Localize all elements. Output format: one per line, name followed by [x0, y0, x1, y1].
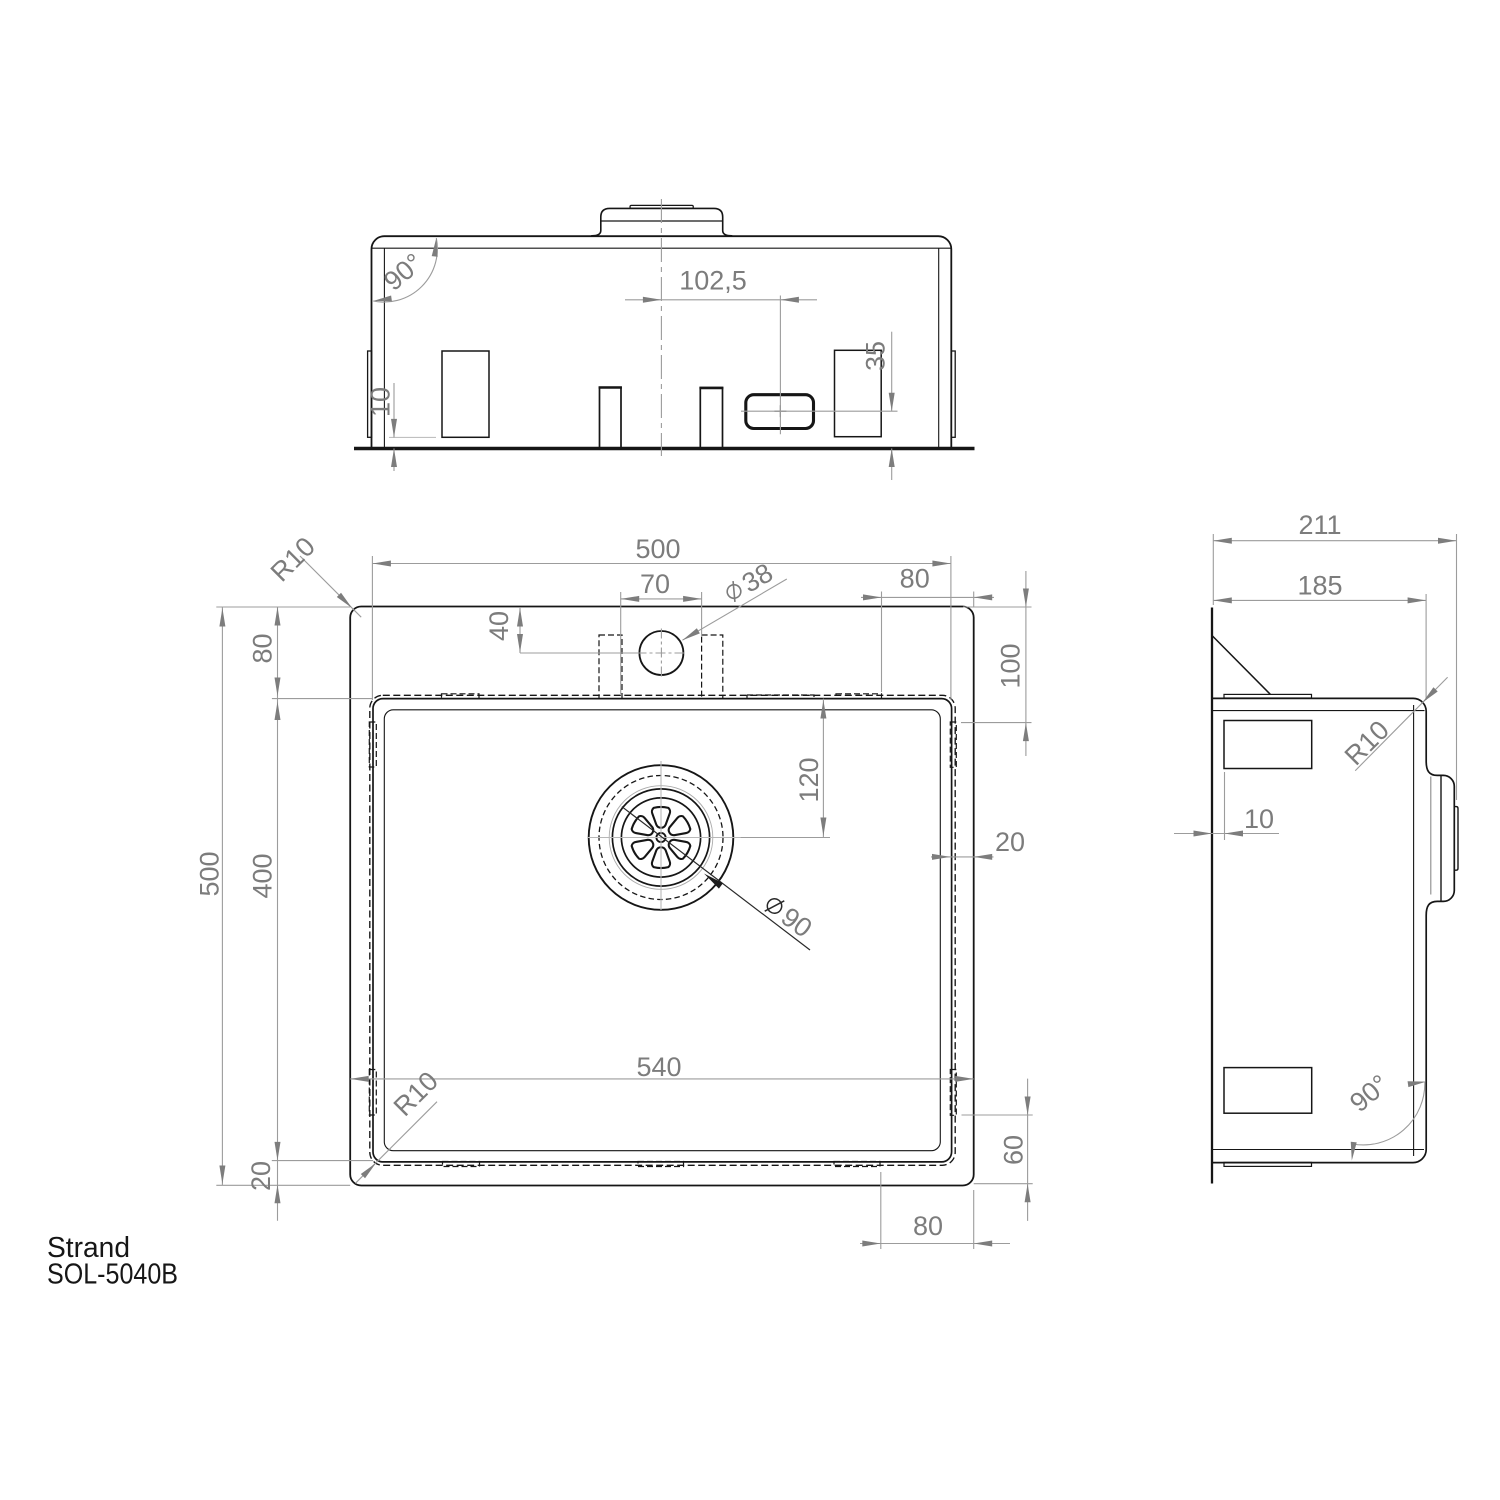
- svg-text:60: 60: [999, 1135, 1029, 1165]
- svg-text:20: 20: [246, 1161, 276, 1191]
- svg-text:20: 20: [995, 827, 1025, 857]
- svg-text:70: 70: [640, 569, 670, 599]
- svg-text:80: 80: [913, 1211, 943, 1241]
- svg-text:120: 120: [794, 757, 824, 802]
- svg-text:80: 80: [900, 564, 930, 594]
- svg-text:500: 500: [195, 851, 225, 896]
- svg-text:185: 185: [1297, 571, 1342, 601]
- svg-text:10: 10: [1244, 804, 1274, 834]
- svg-text:211: 211: [1298, 510, 1341, 540]
- svg-text:35: 35: [861, 341, 891, 371]
- svg-text:540: 540: [636, 1052, 681, 1082]
- svg-text:500: 500: [635, 534, 680, 564]
- svg-text:400: 400: [248, 853, 278, 898]
- svg-text:102,5: 102,5: [679, 266, 747, 296]
- svg-text:40: 40: [484, 611, 514, 641]
- svg-text:10: 10: [366, 387, 396, 417]
- svg-text:SOL-5040B: SOL-5040B: [47, 1259, 178, 1291]
- svg-text:100: 100: [996, 643, 1026, 688]
- svg-text:80: 80: [248, 633, 278, 663]
